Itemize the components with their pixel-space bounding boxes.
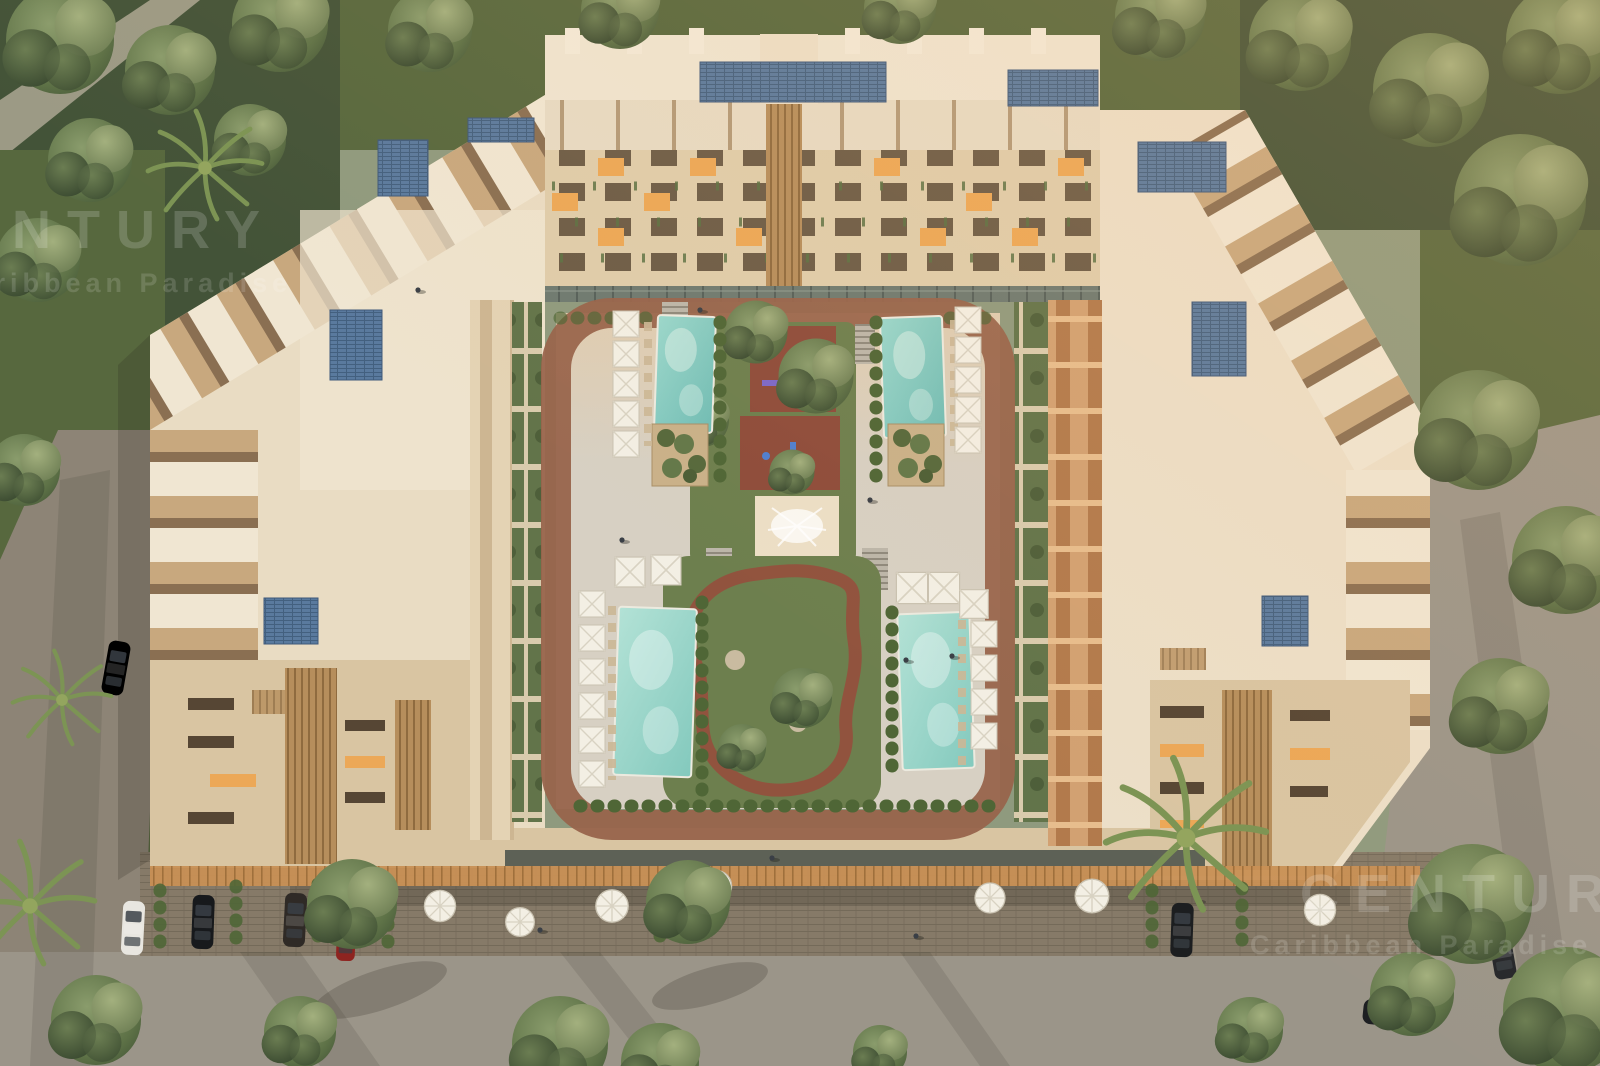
watermark-top-left-line1: CENTURY — [0, 200, 276, 260]
watermark-bottom-right-line2: Caribbean Paradise — [1250, 930, 1592, 960]
render-canvas: CENTURY Caribbean Paradise CENTURY Carib… — [0, 0, 1600, 1066]
watermark-bottom-right-line1: CENTURY — [1300, 864, 1600, 924]
watermark-top-left-line2: Caribbean Paradise — [0, 268, 292, 298]
aerial-render: CENTURY Caribbean Paradise CENTURY Carib… — [0, 0, 1600, 1066]
